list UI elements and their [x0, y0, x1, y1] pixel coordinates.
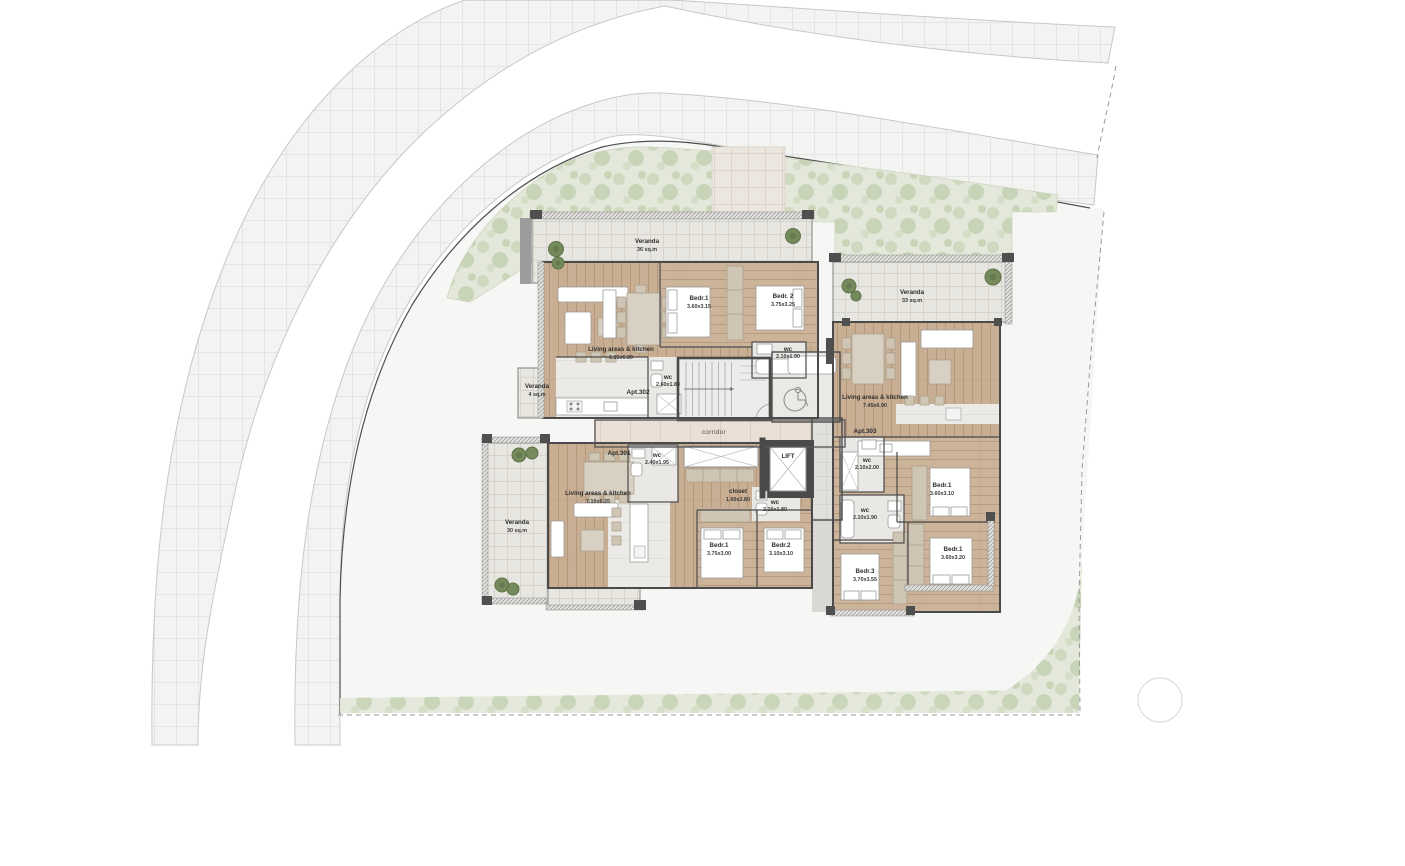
apt303-living-size: 7.45x6.90	[863, 403, 887, 409]
tree	[985, 269, 1001, 285]
tree	[507, 583, 519, 595]
lift-label: LIFT	[781, 453, 794, 460]
apt301-bedr2-size: 3.10x3.10	[769, 551, 793, 557]
veranda-4-label: Veranda	[525, 383, 550, 390]
veranda-33-label: Veranda	[900, 289, 925, 296]
apt303-tag: Apt.303	[853, 428, 877, 435]
apt302-bedr1-size: 3.60x3.15	[687, 304, 711, 310]
tree	[512, 448, 526, 462]
apt301-wc1-label: wc	[652, 452, 662, 459]
apt301-living-label: Living areas & kitchen	[565, 490, 631, 497]
tree	[549, 242, 564, 257]
apt303-bedr1-size: 3.60x3.10	[930, 491, 954, 497]
closet-unit	[684, 446, 758, 482]
apt303-wc2-size: 2.10x1.90	[853, 515, 877, 521]
apt303-bedr2-label: Bedr.1	[944, 546, 963, 553]
wc-top-label: wc	[783, 346, 793, 353]
apt303-wc1-size: 2.10x2.00	[855, 465, 879, 471]
apt302-living-label: Living areas & kitchen	[588, 346, 654, 353]
apt301-coffee-table	[581, 530, 604, 551]
corridor-label: corridor	[702, 429, 726, 436]
tree	[526, 447, 538, 459]
apt303-island	[901, 342, 916, 397]
veranda-33-size: 33 sq.m	[902, 298, 922, 304]
apt302-wardrobe	[727, 266, 743, 340]
apt301-wc2-label: wc	[770, 499, 780, 506]
apt301-bedr1-label: Bedr.1	[710, 542, 729, 549]
apt303-bedr3-label: Bedr.3	[856, 568, 875, 575]
apt303-sofa	[921, 330, 973, 348]
apt301-tag: Apt.301	[607, 450, 631, 457]
tree	[552, 257, 564, 269]
apt302-living-size: 6.15x6.80	[609, 355, 633, 361]
pillar	[520, 218, 531, 284]
apt302-bedr2-label: Bedr. 2	[773, 293, 794, 300]
apt303-dining-table	[842, 334, 895, 384]
apt303-living-label: Living areas & kitchen	[842, 394, 908, 401]
floor-plan-canvas: Veranda 36 sq.m Veranda 33 sq.m Veranda …	[0, 0, 1405, 866]
apt303-bedr2-size: 3.60x3.20	[941, 555, 965, 561]
apt303-bedr1-label: Bedr.1	[933, 482, 952, 489]
apt303-coffee-table	[929, 360, 951, 384]
tree	[786, 229, 801, 244]
apt303-wc2-label: wc	[860, 507, 870, 514]
apt302-bedr1-label: Bedr.1	[690, 295, 709, 302]
apt302-wc-label: wc	[663, 374, 673, 381]
apt301-living-size: 7.10x6.25	[586, 499, 610, 505]
veranda-4-size: 4 sq.m	[528, 392, 545, 398]
entry-path	[712, 147, 785, 218]
apt301-wc2-size: 2.15x1.80	[763, 507, 787, 513]
veranda-30-south-strip	[548, 588, 640, 607]
tree	[851, 291, 861, 301]
apt301-wc1-size: 2.40x1.95	[645, 460, 669, 466]
veranda-36-size: 36 sq.m	[637, 247, 657, 253]
apt301-bedr2-label: Bedr.2	[772, 542, 791, 549]
apt301-bedr1-size: 3.75x3.00	[707, 551, 731, 557]
apt302-wc-size: 2.60x1.80	[656, 382, 680, 388]
closet-size: 1.60x2.80	[726, 497, 750, 503]
apt303-wc1-label: wc	[862, 457, 872, 464]
lift	[762, 440, 814, 498]
building: Veranda 36 sq.m Veranda 33 sq.m Veranda …	[482, 210, 1014, 616]
site-floor-plan: Veranda 36 sq.m Veranda 33 sq.m Veranda …	[0, 0, 1405, 866]
veranda-30-label: Veranda	[505, 519, 530, 526]
veranda-36-label: Veranda	[635, 238, 660, 245]
tree	[842, 279, 856, 293]
closet-label: closet	[729, 488, 747, 495]
apt302-bedr2-size: 3.75x3.25	[771, 302, 795, 308]
apt302-tag: Apt.302	[626, 389, 650, 396]
wc-top-size: 2.10x1.90	[776, 354, 800, 360]
apt303-bedr3-size: 3.70x3.55	[853, 577, 877, 583]
veranda-30-size: 30 sq.m	[507, 528, 527, 534]
apt301-bed2	[764, 528, 804, 572]
apt302-island	[603, 290, 616, 338]
